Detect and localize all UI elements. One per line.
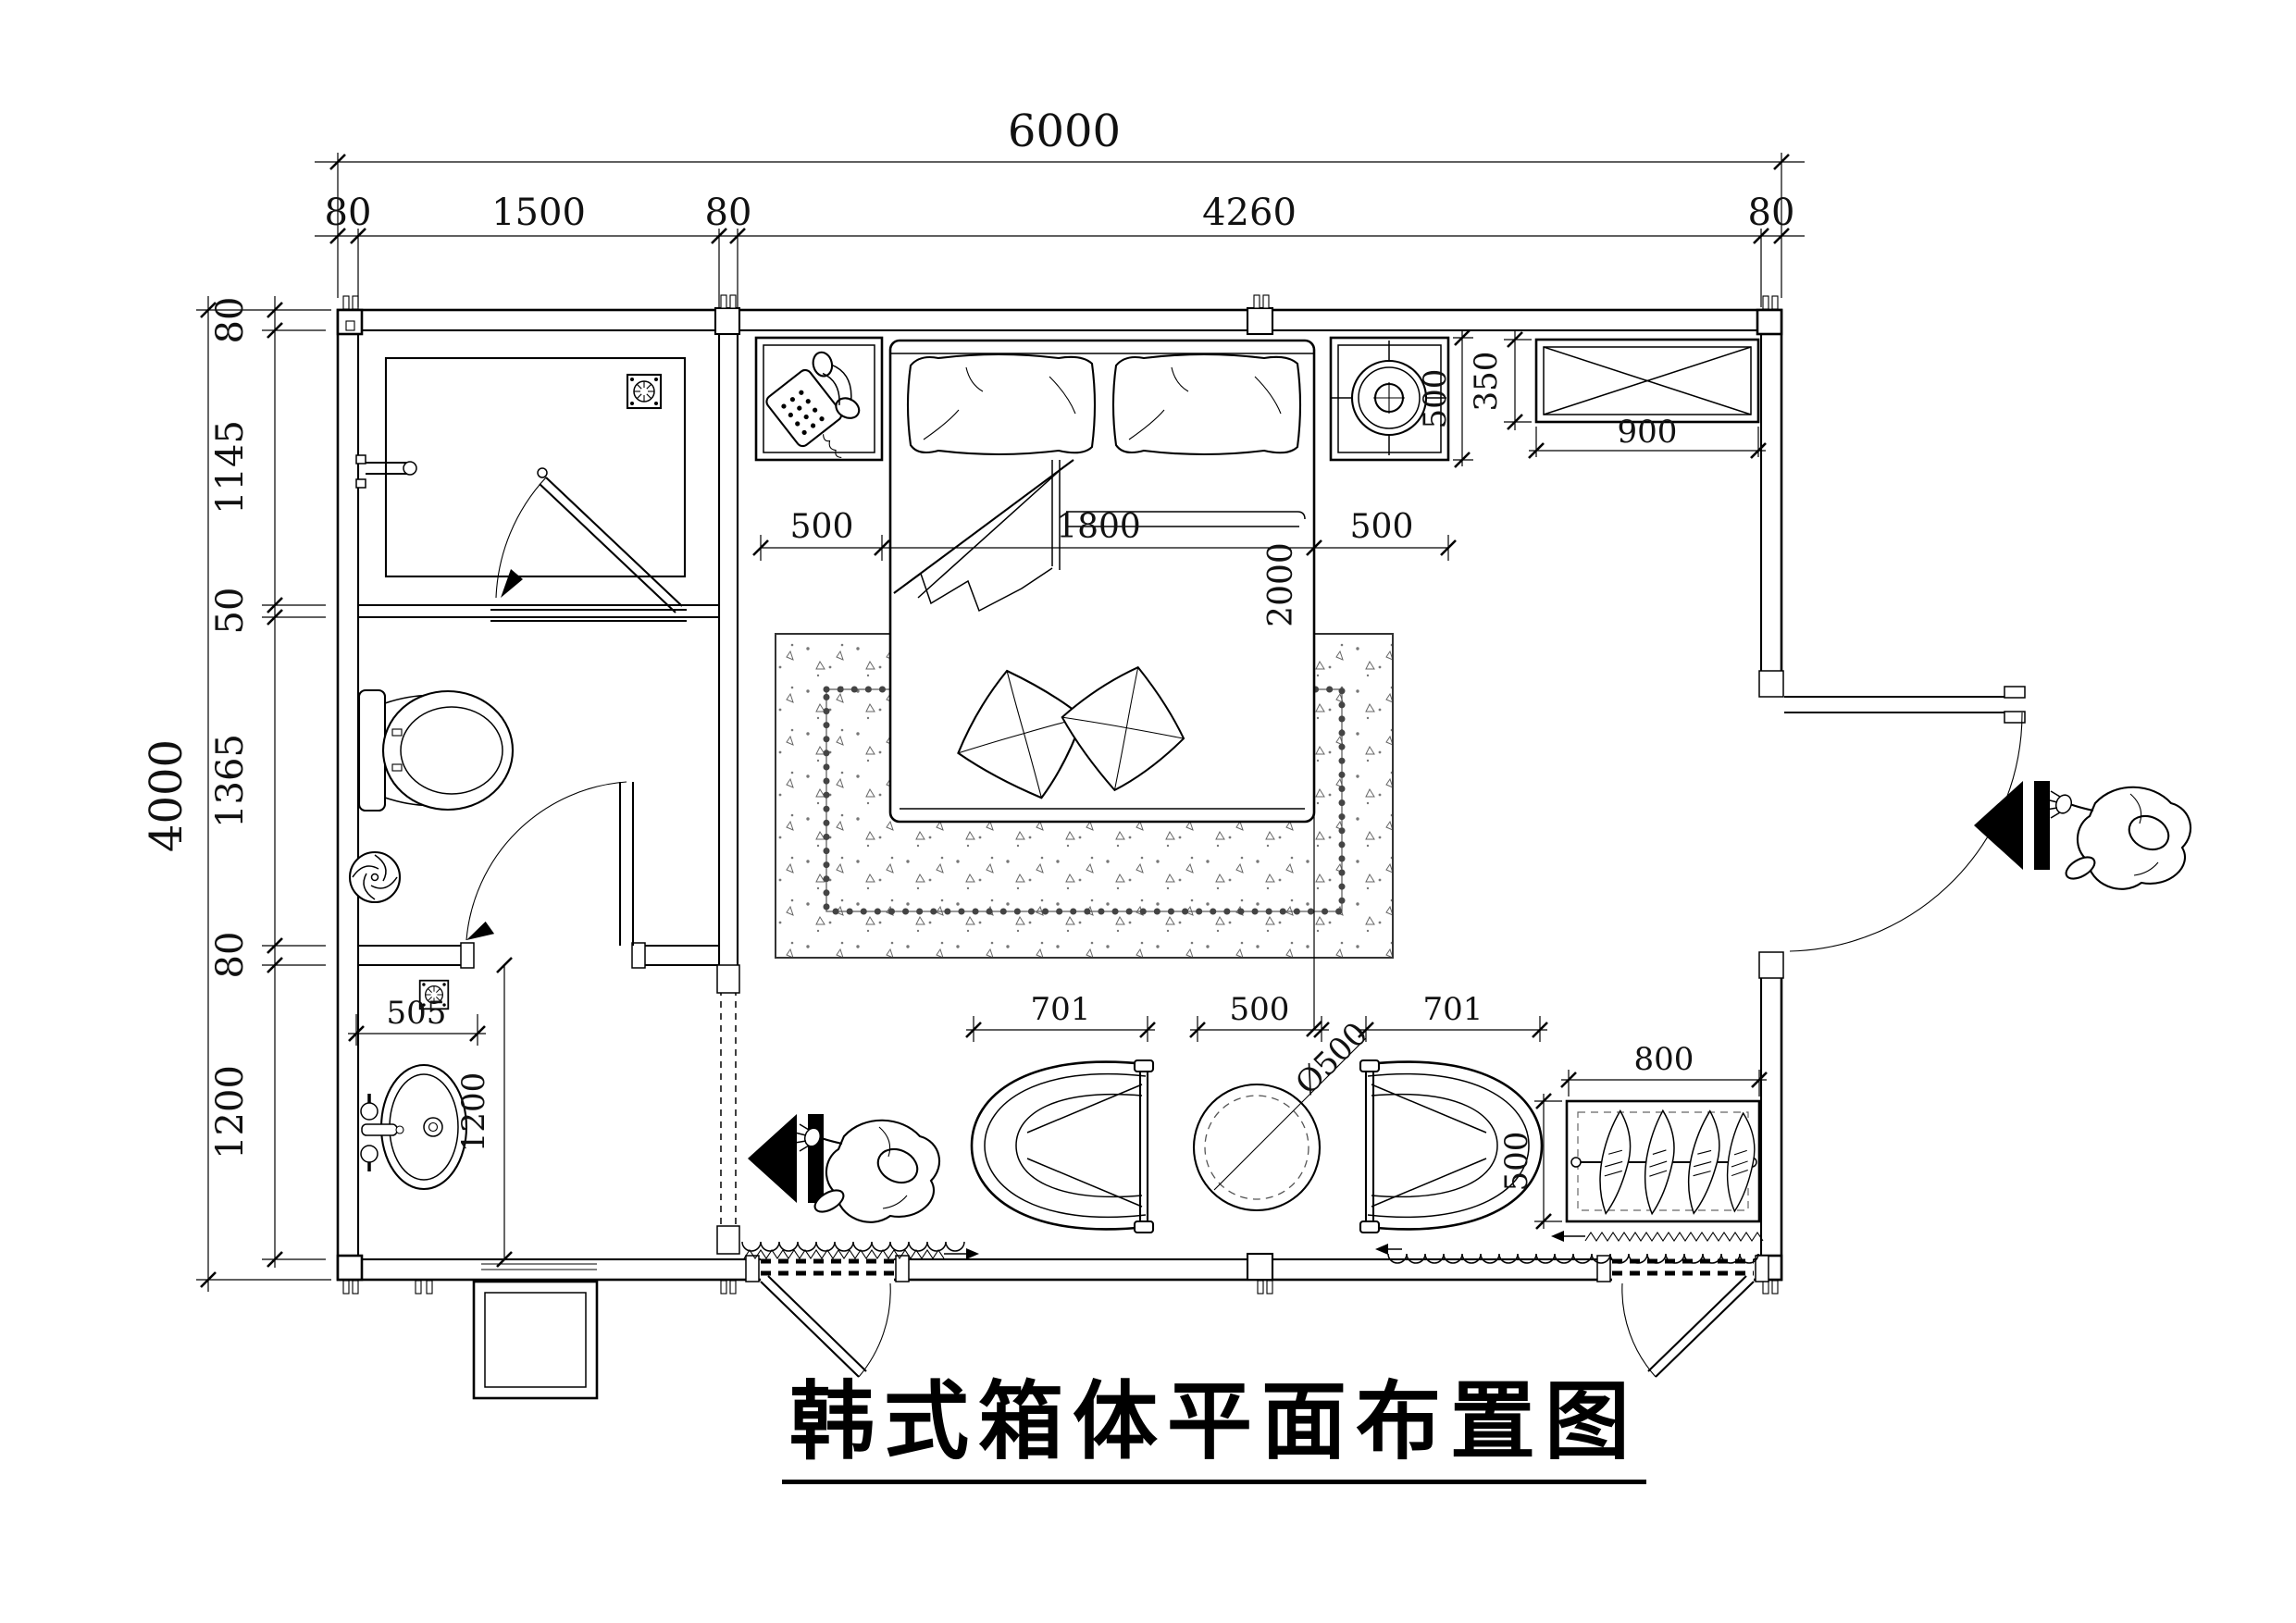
person-entry [2046,787,2191,889]
floor-plan-page: 6000 80 1500 80 4260 80 4000 [0,0,2296,1623]
dim-label: 701 [1031,991,1091,1028]
dim-label: 50 [209,588,252,635]
dim-label: 2000 [1262,542,1300,627]
dim-label: 800 [1634,1041,1694,1078]
planter-box [1567,1101,1759,1221]
dim-window-height: 350 [1468,331,1532,430]
dim-label: 80 [209,932,252,979]
dim-label: 80 [705,192,752,234]
entry-arrow-bar [2034,781,2050,870]
dim-vanity: 1200 [455,958,512,1267]
dim-label: 6000 [1008,105,1121,157]
dim-table-diameter: Ø500 [1288,1015,1375,1102]
pillow [1113,354,1300,454]
drawing-title: 韩式箱体平面布置图 [782,1353,1646,1484]
porch-step [474,1264,597,1398]
dim-label: 1800 [1056,508,1141,546]
dim-chairs-table: 701 500 701 [966,991,1547,1042]
inner-arrow-bar [808,1114,824,1203]
dim-label: 701 [1423,991,1483,1028]
chair-left [972,1060,1153,1233]
dim-label: 350 [1468,352,1505,412]
dim-label: 4260 [1202,192,1297,234]
dim-label: 500 [1230,991,1290,1028]
entry-arrow [1974,781,2023,870]
dim-label: 1365 [209,734,252,828]
inner-arrow [748,1114,797,1203]
dim-label: 505 [387,995,447,1032]
dim-label: 900 [1618,414,1678,451]
dim-label: 80 [325,192,372,234]
dim-label: 80 [209,297,252,344]
sink-vanity [361,1065,466,1189]
dim-label: 80 [1748,192,1795,234]
dim-label: 1200 [209,1065,252,1159]
dim-label: 500 [1498,1132,1535,1192]
dim-label: 1200 [455,1072,492,1153]
dim-left-chain: 80 1145 50 1365 80 1200 [209,296,326,1268]
toilet [359,690,513,811]
shower-room [386,358,687,621]
window-cabinet [1536,340,1758,422]
dim-label: 500 [1350,508,1414,546]
nightstand-left [756,338,886,474]
dim-label: 500 [790,508,854,546]
exhaust-fan-icon [350,852,400,902]
dim-drain: 505 [348,995,486,1046]
dim-top-chain: 80 1500 80 4260 80 [315,192,1805,307]
bathroom-door [466,782,633,946]
dim-label: 1500 [491,192,586,234]
dim-label: 4000 [141,739,192,852]
dim-label: 1145 [209,420,252,514]
dim-label: 500 [1417,369,1454,429]
pillow [908,354,1095,454]
